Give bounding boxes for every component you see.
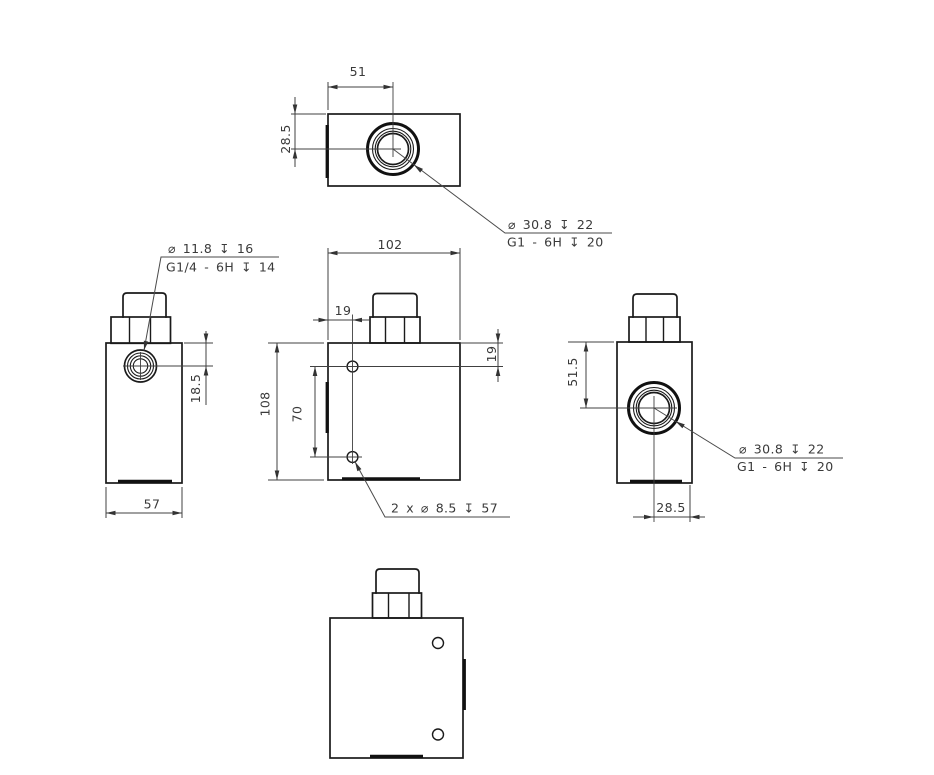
callout-port-right-line2: G1 - 6H ↧ 20 — [737, 459, 834, 474]
dim-arrow — [328, 85, 338, 90]
dim-text-28-5: 28.5 — [656, 500, 685, 515]
dim-arrow — [496, 367, 501, 377]
dim-arrow — [353, 318, 363, 323]
top-view: 51 28.5 ⌀ 30.8 ↧ 22 G1 - 6H ↧ 20 — [278, 64, 612, 250]
dim-arrow — [451, 251, 461, 256]
dim-arrow — [313, 448, 318, 458]
dim-arrow — [173, 511, 183, 516]
dim-arrow — [106, 511, 116, 516]
dim-arrow — [496, 334, 501, 344]
dim-text-70: 70 — [290, 406, 305, 423]
callout-mounting-holes: 2 x ⌀ 8.5 ↧ 57 — [391, 501, 498, 516]
dim-arrow — [275, 471, 280, 481]
callout-port-right-line1: ⌀ 30.8 ↧ 22 — [739, 442, 825, 457]
left-view-body — [106, 343, 182, 483]
drawing-sheet: 51 28.5 ⌀ 30.8 ↧ 22 G1 - 6H ↧ 20 — [0, 0, 934, 775]
dim-arrow — [328, 251, 338, 256]
dim-arrow — [319, 318, 329, 323]
back-view — [330, 569, 464, 758]
dim-arrow — [204, 366, 209, 376]
callout-port-side-line2: G1/4 - 6H ↧ 14 — [166, 260, 276, 275]
dim-text-18-5: 18.5 — [188, 374, 203, 403]
dim-arrow — [313, 367, 318, 377]
dim-text-102: 102 — [377, 237, 402, 252]
dim-text-19-y: 19 — [484, 346, 499, 363]
dim-text-19-x: 19 — [335, 303, 352, 318]
dim-arrow — [293, 149, 298, 159]
mounting-hole-bottom — [433, 729, 444, 740]
dim-arrow — [584, 342, 589, 352]
plug-cap-outline — [633, 294, 677, 317]
left-side-view: 18.5 57 ⌀ 11.8 ↧ 16 G1/4 - 6H ↧ 14 — [106, 241, 279, 518]
dim-arrow — [690, 515, 700, 520]
plug-hex-outline — [370, 317, 420, 343]
dim-text-57: 57 — [144, 497, 161, 512]
dim-arrow — [384, 85, 394, 90]
right-side-view: 51.5 28.5 ⌀ 30.8 ↧ 22 G1 - 6H ↧ 20 — [565, 294, 843, 522]
dim-arrow — [644, 515, 654, 520]
engineering-drawing: 51 28.5 ⌀ 30.8 ↧ 22 G1 - 6H ↧ 20 — [0, 0, 934, 775]
dim-text-51: 51 — [350, 64, 367, 79]
mounting-hole-top — [433, 638, 444, 649]
plug-cap-outline — [123, 293, 166, 317]
dim-arrow — [293, 105, 298, 115]
callout-port-top-line1: ⌀ 30.8 ↧ 22 — [508, 217, 594, 232]
dim-arrow — [584, 399, 589, 409]
dim-text-28-5: 28.5 — [278, 124, 293, 153]
dim-text-51-5: 51.5 — [565, 357, 580, 386]
plug-hex-outline — [629, 317, 680, 342]
dim-arrow — [275, 343, 280, 353]
callout-port-side-line1: ⌀ 11.8 ↧ 16 — [168, 241, 254, 256]
plug-cap-outline — [373, 294, 417, 318]
front-view: 102 19 19 108 70 2 x ⌀ 8.5 ↧ 57 — [258, 237, 511, 517]
dim-text-108: 108 — [258, 391, 273, 416]
plug-hex-outline — [111, 317, 171, 343]
plug-cap-outline — [376, 569, 419, 593]
plug-hex-outline — [373, 593, 422, 618]
callout-port-top-line2: G1 - 6H ↧ 20 — [507, 235, 604, 250]
dim-arrow — [204, 334, 209, 344]
